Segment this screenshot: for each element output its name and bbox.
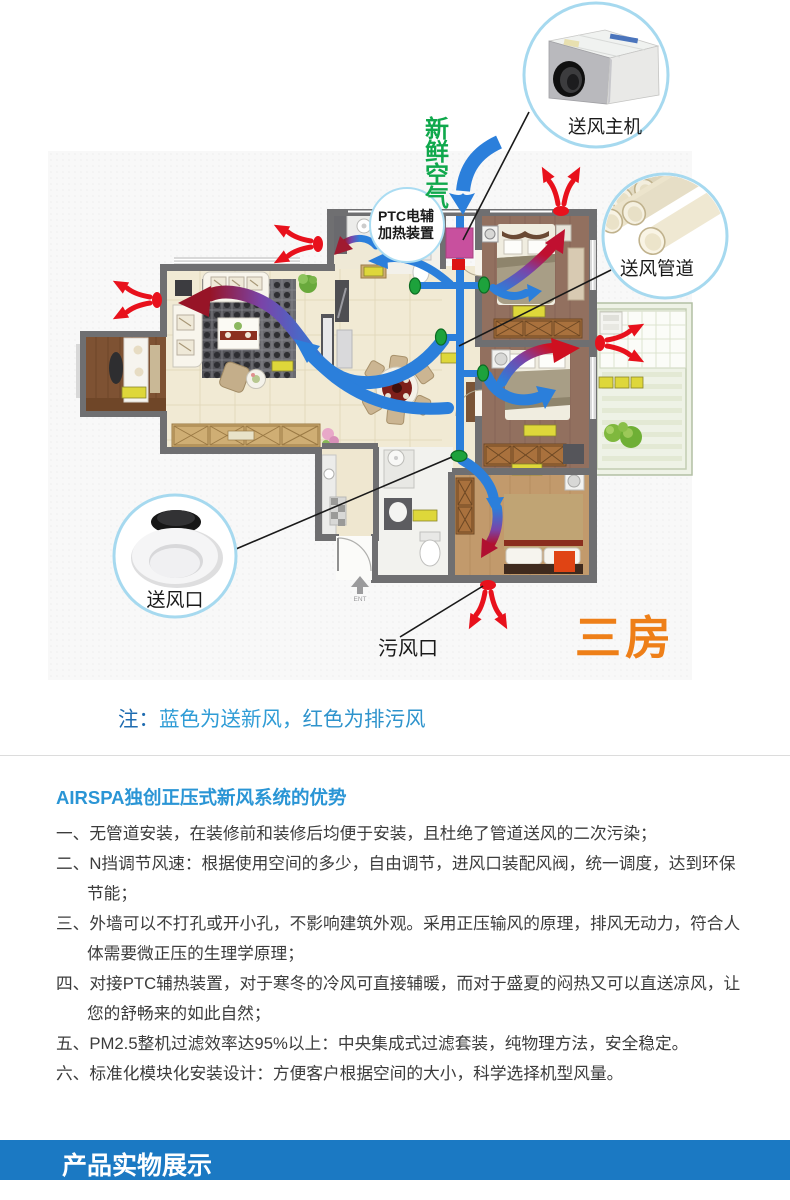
svg-text:污风口: 污风口 xyxy=(378,637,438,660)
svg-text:送风主机: 送风主机 xyxy=(568,116,643,137)
svg-text:ENT: ENT xyxy=(354,596,367,603)
svg-text:送风管道: 送风管道 xyxy=(620,258,694,279)
svg-text:送风口: 送风口 xyxy=(146,589,203,611)
svg-text:气: 气 xyxy=(424,184,449,212)
svg-text:加热装置: 加热装置 xyxy=(377,225,434,241)
svg-text:三房: 三房 xyxy=(575,612,675,664)
